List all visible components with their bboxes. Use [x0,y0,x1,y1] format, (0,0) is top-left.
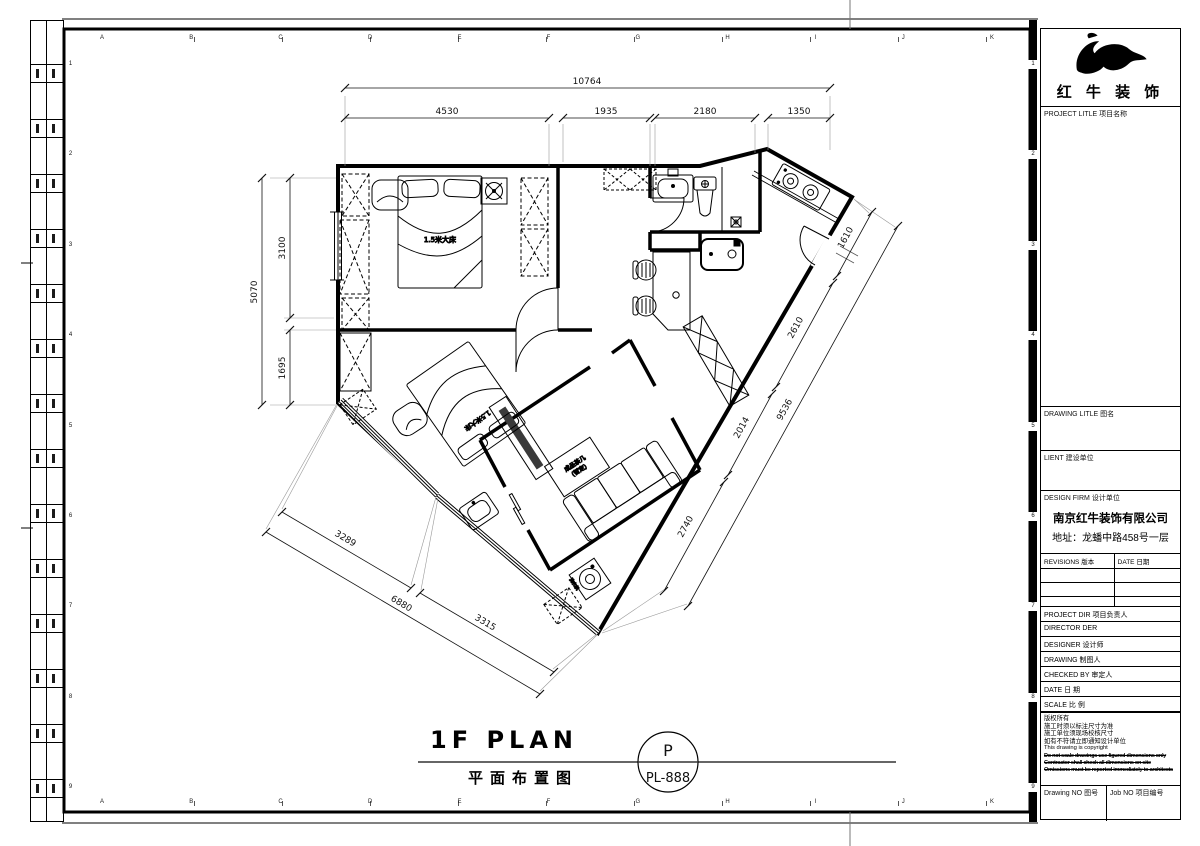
client-label: LIENT 建设单位 [1041,451,1180,463]
grid-number: 2 [66,150,75,159]
grid-letter: A [100,797,104,807]
signature-rows: PROJECT DIR 项目负责人 DIRECTOR DER DESIGNER … [1041,607,1180,712]
date-row: DATE 日 期 [1041,682,1180,697]
grid-number: 5 [1028,422,1038,431]
revision-row [1041,583,1180,597]
design-firm-box: DESIGN FIRM 设计单位 南京红牛装饰有限公司 地址：龙蟠中路458号一… [1041,491,1180,554]
grid-number: 8 [1028,693,1038,702]
grid-letter: C [278,33,282,43]
dim-right-total: 9536 [775,397,795,422]
grid-letter: H [725,33,729,43]
firm-name: 南京红牛装饰有限公司 [1041,510,1180,526]
grid-number: 9 [1028,783,1038,792]
logo-box: 红 牛 装 饰 [1041,29,1180,107]
brand-name: 红 牛 装 饰 [1041,81,1180,102]
project-title-label: PROJECT LITLE 项目名称 [1041,107,1180,119]
dim-left-1: 3100 [278,236,288,259]
grid-number: 1 [1028,60,1038,69]
grid-number: 6 [66,512,75,521]
grid-number: 7 [66,602,75,611]
director-row: DIRECTOR DER [1041,622,1180,637]
grid-letter: J [902,797,905,807]
grid-number: 4 [66,331,75,340]
grid-number: 6 [1028,512,1038,521]
grid-number: 2 [1028,150,1038,159]
revisions-table: REVISIONS 版本 DATE 日期 [1041,554,1180,607]
grid-letter: K [990,797,994,807]
grid-letters-bottom: ABCDEFGHIJK [64,797,1030,807]
plan-title-cn: 平面布置图 [468,767,578,788]
grid-letter: I [815,797,817,807]
grid-numbers-right: 123456789 [1028,60,1038,792]
grid-letter: H [725,797,729,807]
grid-letter: F [547,797,551,807]
fold-strip-divider [46,21,47,821]
grid-numbers-left: 123456789 [66,60,75,792]
grid-letter: E [457,33,461,43]
grid-letters-top: ABCDEFGHIJK [64,33,1030,43]
project-title-box: PROJECT LITLE 项目名称 [1041,107,1180,407]
grid-letter: I [815,33,817,43]
floorplan-sheet: { "border": { "letters": ["A","B","C","D… [0,0,1200,846]
copyright-note: Omissions must be reported immediately t… [1044,767,1177,774]
drawing-number-box: Drawing NO 图号 Job NO 项目编号 [1041,786,1180,821]
checked-by-row: CHECKED BY 审定人 [1041,667,1180,682]
dim-right-3: 2014 [732,415,752,440]
grid-number: 1 [66,60,75,69]
floor-plan-canvas: 1.5米大床 [0,0,1200,846]
copyright-note: Contractor shall check all dimensions on… [1044,760,1177,767]
fold-mark-strip [30,20,64,822]
revisions-date-header: DATE 日期 [1115,554,1180,568]
grid-letter: D [368,33,372,43]
job-no-label: Job NO 项目编号 [1107,786,1180,798]
copyright-box: 版权所有 施工时须以标注尺寸为准 施工单位须现场校核尺寸 如有不符请立即通知设计… [1041,712,1180,786]
grid-letter: D [368,797,372,807]
firm-address: 地址：龙蟠中路458号一层 [1041,529,1180,544]
dim-top-1: 4530 [436,107,459,117]
drawing-no-label: Drawing NO 图号 [1041,786,1106,798]
client-box: LIENT 建设单位 [1041,451,1180,491]
scale-row: SCALE 比 例 [1041,697,1180,712]
stamp-letter: P [663,741,673,760]
grid-number: 3 [66,241,75,250]
drawing-title-label: DRAWING LITLE 图名 [1041,407,1180,419]
dim-top-total: 10764 [573,77,602,87]
revision-row [1041,569,1180,583]
dim-bl-1: 3289 [333,529,358,549]
grid-number: 3 [1028,241,1038,250]
grid-letter: B [189,33,193,43]
copyright-note: Do not scale drawings use figured dimens… [1044,753,1177,760]
revisions-header: REVISIONS 版本 [1041,554,1115,568]
copyright-line: 施工单位须现场校核尺寸 [1044,730,1177,738]
grid-letter: J [902,33,905,43]
copyright-line: 版权所有 [1044,715,1177,723]
dim-left-2: 1695 [278,357,288,380]
dim-top-4: 1350 [788,107,811,117]
dim-bl-2: 3315 [473,613,498,633]
stamp-number: PL-888 [646,771,690,786]
copyright-line: 如有不符请立即通知设计单位 [1044,738,1177,746]
bed1-label: 1.5米大床 [424,235,456,244]
designer-row: DESIGNER 设计师 [1041,637,1180,652]
grid-letter: G [636,797,641,807]
grid-letter: F [547,33,551,43]
grid-letter: C [278,797,282,807]
grid-number: 4 [1028,331,1038,340]
grid-letter: E [457,797,461,807]
redbull-logo-icon [1051,31,1171,83]
grid-number: 8 [66,693,75,702]
grid-number: 7 [1028,602,1038,611]
grid-number: 9 [66,783,75,792]
copyright-line-en: This drawing is copyright [1044,745,1177,753]
plan-title-en: 1F PLAN [430,726,578,754]
grid-number: 5 [66,422,75,431]
title-block: 红 牛 装 饰 PROJECT LITLE 项目名称 DRAWING LITLE… [1040,28,1181,820]
dim-top-3: 2180 [694,107,717,117]
revision-row [1041,597,1180,607]
drawing-title-box: DRAWING LITLE 图名 [1041,407,1180,451]
grid-letter: G [636,33,641,43]
project-dir-row: PROJECT DIR 项目负责人 [1041,607,1180,622]
design-firm-label: DESIGN FIRM 设计单位 [1041,491,1180,503]
grid-letter: K [990,33,994,43]
grid-letter: B [189,797,193,807]
dim-right-4: 2740 [676,514,696,539]
drawing-by-row: DRAWING 制图人 [1041,652,1180,667]
dim-top-2: 1935 [595,107,618,117]
dim-left-total: 5070 [250,280,260,303]
grid-letter: A [100,33,104,43]
